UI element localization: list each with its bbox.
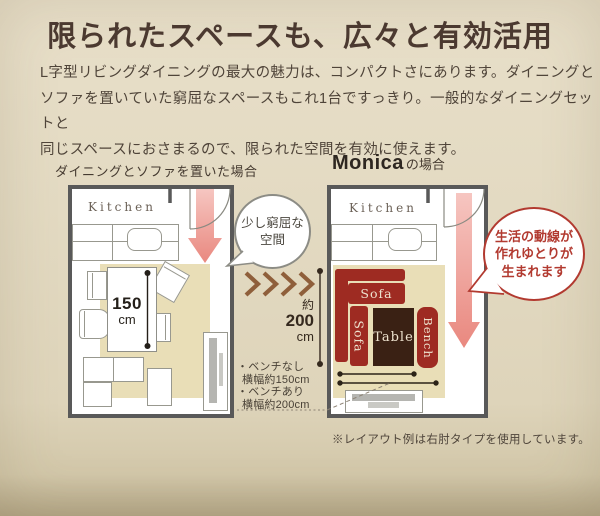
after-caption-suffix: の場合 bbox=[404, 153, 445, 176]
after-kitchen-label: Kitchen bbox=[331, 201, 435, 215]
width-notes: ・ベンチなし 横幅約150cm ・ベンチあり 横幅約200cm bbox=[237, 362, 310, 412]
side-table bbox=[147, 368, 172, 406]
table-length-unit: cm bbox=[107, 313, 147, 327]
after-bubble-line-2: 作れゆとりが bbox=[495, 245, 573, 263]
after-speech-bubble: 生活の動線が 作れゆとりが 生まれます bbox=[483, 207, 585, 301]
sofa-cushion-line bbox=[113, 358, 114, 381]
note-width-200: 横幅約200cm bbox=[237, 400, 310, 412]
note-bench-with: ・ベンチあり bbox=[237, 387, 310, 399]
bench-label: Bench bbox=[417, 307, 438, 368]
chair-back-line bbox=[92, 273, 93, 298]
tv-screen bbox=[209, 338, 217, 403]
sofa-top-label: Sofa bbox=[348, 283, 405, 304]
monica-bench: Bench bbox=[417, 307, 438, 368]
before-sofa bbox=[83, 357, 144, 382]
counter-divider bbox=[372, 225, 373, 260]
description-line-1: L字型リビングダイニングの最大の魅力は、コンパクトさにあります。ダイニングと bbox=[40, 61, 600, 87]
after-bubble-line-3: 生まれます bbox=[501, 263, 566, 281]
sofa-seat-top: Sofa bbox=[348, 283, 405, 304]
description-line-2: ソファを置いていた窮屈なスペースもこれ1台ですっきり。一般的なダイニングセットと bbox=[40, 87, 600, 138]
tv-screen bbox=[352, 394, 415, 401]
after-kitchen-counter bbox=[331, 224, 437, 261]
kitchen-sink bbox=[127, 228, 162, 251]
chair-back-line bbox=[165, 315, 166, 340]
counter-divider bbox=[112, 225, 113, 260]
sofa-left-label: Sofa bbox=[350, 306, 368, 366]
dimension-dot bbox=[317, 268, 323, 274]
infographic-canvas: 限られたスペースも、広々と有効活用 L字型リビングダイニングの最大の魅力は、コン… bbox=[0, 0, 600, 516]
after-caption: Monica の場合 bbox=[332, 150, 445, 176]
footnote: ※レイアウト例は右肘タイプを使用しています。 bbox=[332, 431, 590, 447]
depth-value: 200 bbox=[268, 312, 314, 330]
depth-unit: cm bbox=[268, 330, 314, 344]
transition-chevrons-icon bbox=[246, 273, 312, 295]
table-length-value: 150 bbox=[107, 294, 147, 313]
table-label: Table bbox=[373, 308, 414, 366]
before-kitchen-label: Kitchen bbox=[72, 200, 172, 214]
armchair bbox=[79, 309, 110, 339]
monica-table: Table bbox=[373, 308, 414, 366]
depth-dimension-label: 約 200 cm bbox=[268, 298, 314, 344]
description-line-3: 同じスペースにおさまるので、限られた空間を有効に使えます。 bbox=[40, 138, 600, 164]
chair-back-line bbox=[84, 311, 85, 337]
sofa-backrest-left bbox=[335, 269, 348, 362]
note-width-150: 横幅約150cm bbox=[237, 375, 310, 387]
before-bubble-line-1: 少し窮屈な bbox=[241, 215, 304, 232]
before-speech-bubble: 少し窮屈な 空間 bbox=[234, 194, 311, 269]
before-sofa-chaise bbox=[83, 382, 112, 407]
before-bubble-line-2: 空間 bbox=[260, 232, 285, 249]
before-kitchen-counter bbox=[72, 224, 179, 261]
tv-stand-part bbox=[368, 402, 399, 408]
after-bubble-line-1: 生活の動線が bbox=[495, 228, 573, 246]
before-tv-board bbox=[203, 332, 228, 411]
dining-chair bbox=[87, 271, 107, 300]
kitchen-sink bbox=[388, 228, 422, 251]
depth-approx: 約 bbox=[268, 298, 314, 312]
page-title: 限られたスペースも、広々と有効活用 bbox=[0, 13, 600, 55]
sofa-seat-left: Sofa bbox=[350, 306, 368, 366]
note-bench-none: ・ベンチなし bbox=[237, 362, 310, 374]
brand-name: Monica bbox=[332, 150, 404, 176]
before-caption: ダイニングとソファを置いた場合 bbox=[55, 161, 258, 180]
table-length-label: 150 cm bbox=[107, 294, 147, 327]
dimension-dot bbox=[317, 361, 323, 367]
tv-stand-part bbox=[219, 353, 223, 386]
after-tv-board bbox=[345, 390, 423, 413]
counter-divider bbox=[73, 241, 178, 242]
description-text: L字型リビングダイニングの最大の魅力は、コンパクトさにあります。ダイニングと ソ… bbox=[40, 61, 600, 163]
